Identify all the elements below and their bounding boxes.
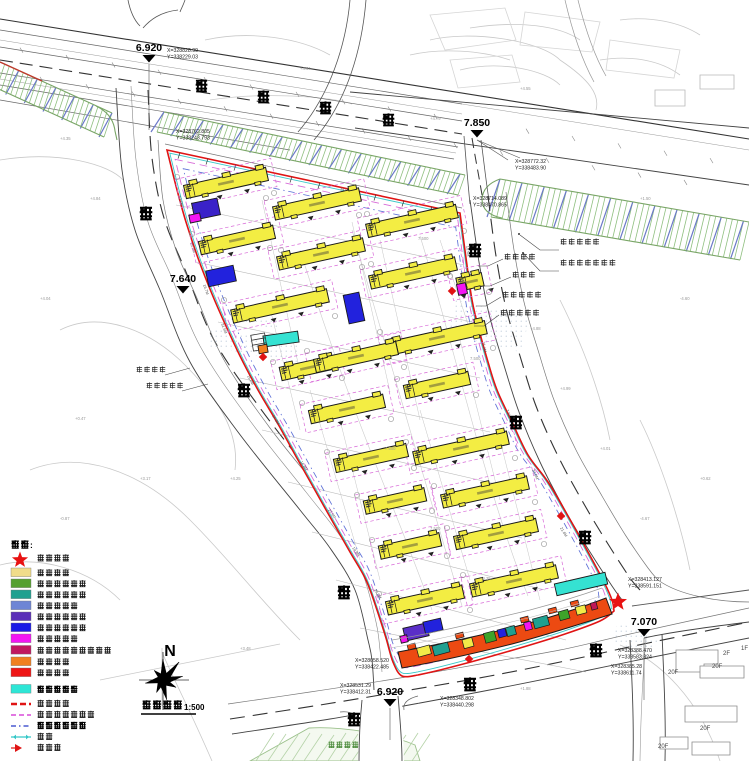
svg-text:+4.25: +4.25 (230, 476, 241, 481)
svg-text:X=328762.805: X=328762.805 (176, 129, 210, 135)
svg-text:20F: 20F (668, 670, 679, 676)
svg-text:6.920: 6.920 (377, 686, 403, 698)
svg-text:7.500: 7.500 (385, 446, 396, 451)
svg-text:Y=338583.324: Y=338583.324 (618, 655, 652, 661)
svg-text:2F: 2F (723, 651, 730, 657)
svg-text:+4.04: +4.04 (40, 296, 51, 301)
svg-text:N: N (164, 643, 176, 660)
svg-text:Y=338483.90: Y=338483.90 (515, 166, 546, 172)
svg-text:+3.48: +3.48 (240, 646, 251, 651)
svg-text:Y=338229.03: Y=338229.03 (167, 55, 198, 61)
svg-text:1F: 1F (741, 646, 748, 652)
svg-text:X=328348.802: X=328348.802 (440, 696, 474, 702)
svg-text:+4.99: +4.99 (560, 386, 571, 391)
svg-text:7.850: 7.850 (464, 117, 490, 129)
svg-text:+1.88: +1.88 (520, 686, 531, 691)
svg-text:Y=338243.793: Y=338243.793 (176, 136, 210, 142)
svg-text::: : (30, 540, 33, 550)
svg-text:X=328531.29: X=328531.29 (340, 683, 371, 689)
svg-text:+4.35: +4.35 (60, 136, 71, 141)
svg-text:+0.47: +0.47 (75, 416, 86, 421)
svg-text:7.640: 7.640 (170, 273, 196, 285)
svg-text:X=328714.089: X=328714.089 (473, 196, 507, 202)
svg-text:+4.79: +4.79 (430, 116, 441, 121)
svg-text:7.500: 7.500 (418, 236, 429, 241)
svg-text:+4.88: +4.88 (530, 326, 541, 331)
svg-text:Y=338591.151: Y=338591.151 (628, 584, 662, 590)
svg-text:+0.62: +0.62 (700, 476, 711, 481)
svg-text:1:500: 1:500 (184, 703, 205, 712)
svg-text:+3.17: +3.17 (140, 476, 151, 481)
svg-text:X=328385.28: X=328385.28 (611, 664, 642, 670)
svg-text:20F: 20F (712, 664, 723, 670)
svg-text:Y=338440.298: Y=338440.298 (440, 703, 474, 709)
svg-text:6.920: 6.920 (136, 42, 162, 54)
svg-text:+4.01: +4.01 (600, 446, 611, 451)
svg-text:+1.50: +1.50 (640, 196, 651, 201)
svg-text:+4.64: +4.64 (300, 66, 311, 71)
svg-text:7.500: 7.500 (430, 526, 441, 531)
svg-text:X=328413.127: X=328413.127 (628, 577, 662, 583)
svg-text:X=328058.520: X=328058.520 (355, 658, 389, 664)
svg-text:X=328772.32: X=328772.32 (515, 159, 546, 165)
svg-text:+4.84: +4.84 (90, 196, 101, 201)
svg-text:7.070: 7.070 (631, 616, 657, 628)
svg-text:X=328828.99: X=328828.99 (167, 48, 198, 54)
svg-text:+0.35: +0.35 (480, 576, 491, 581)
svg-text:20F: 20F (700, 726, 711, 732)
svg-text:20F: 20F (658, 744, 669, 750)
svg-text:Y=338611.74: Y=338611.74 (611, 671, 642, 677)
svg-text:-4.67: -4.67 (640, 516, 650, 521)
svg-text:-0.87: -0.87 (60, 516, 70, 521)
svg-text:Y=338470.865: Y=338470.865 (473, 203, 507, 209)
svg-text:Y=338422.485: Y=338422.485 (355, 665, 389, 671)
svg-text:Y=338412.31: Y=338412.31 (340, 690, 371, 696)
svg-text:7.500: 7.500 (470, 356, 481, 361)
svg-text:-4.60: -4.60 (680, 296, 690, 301)
svg-text:+4.55: +4.55 (520, 86, 531, 91)
svg-text:X=328388.470: X=328388.470 (618, 648, 652, 654)
